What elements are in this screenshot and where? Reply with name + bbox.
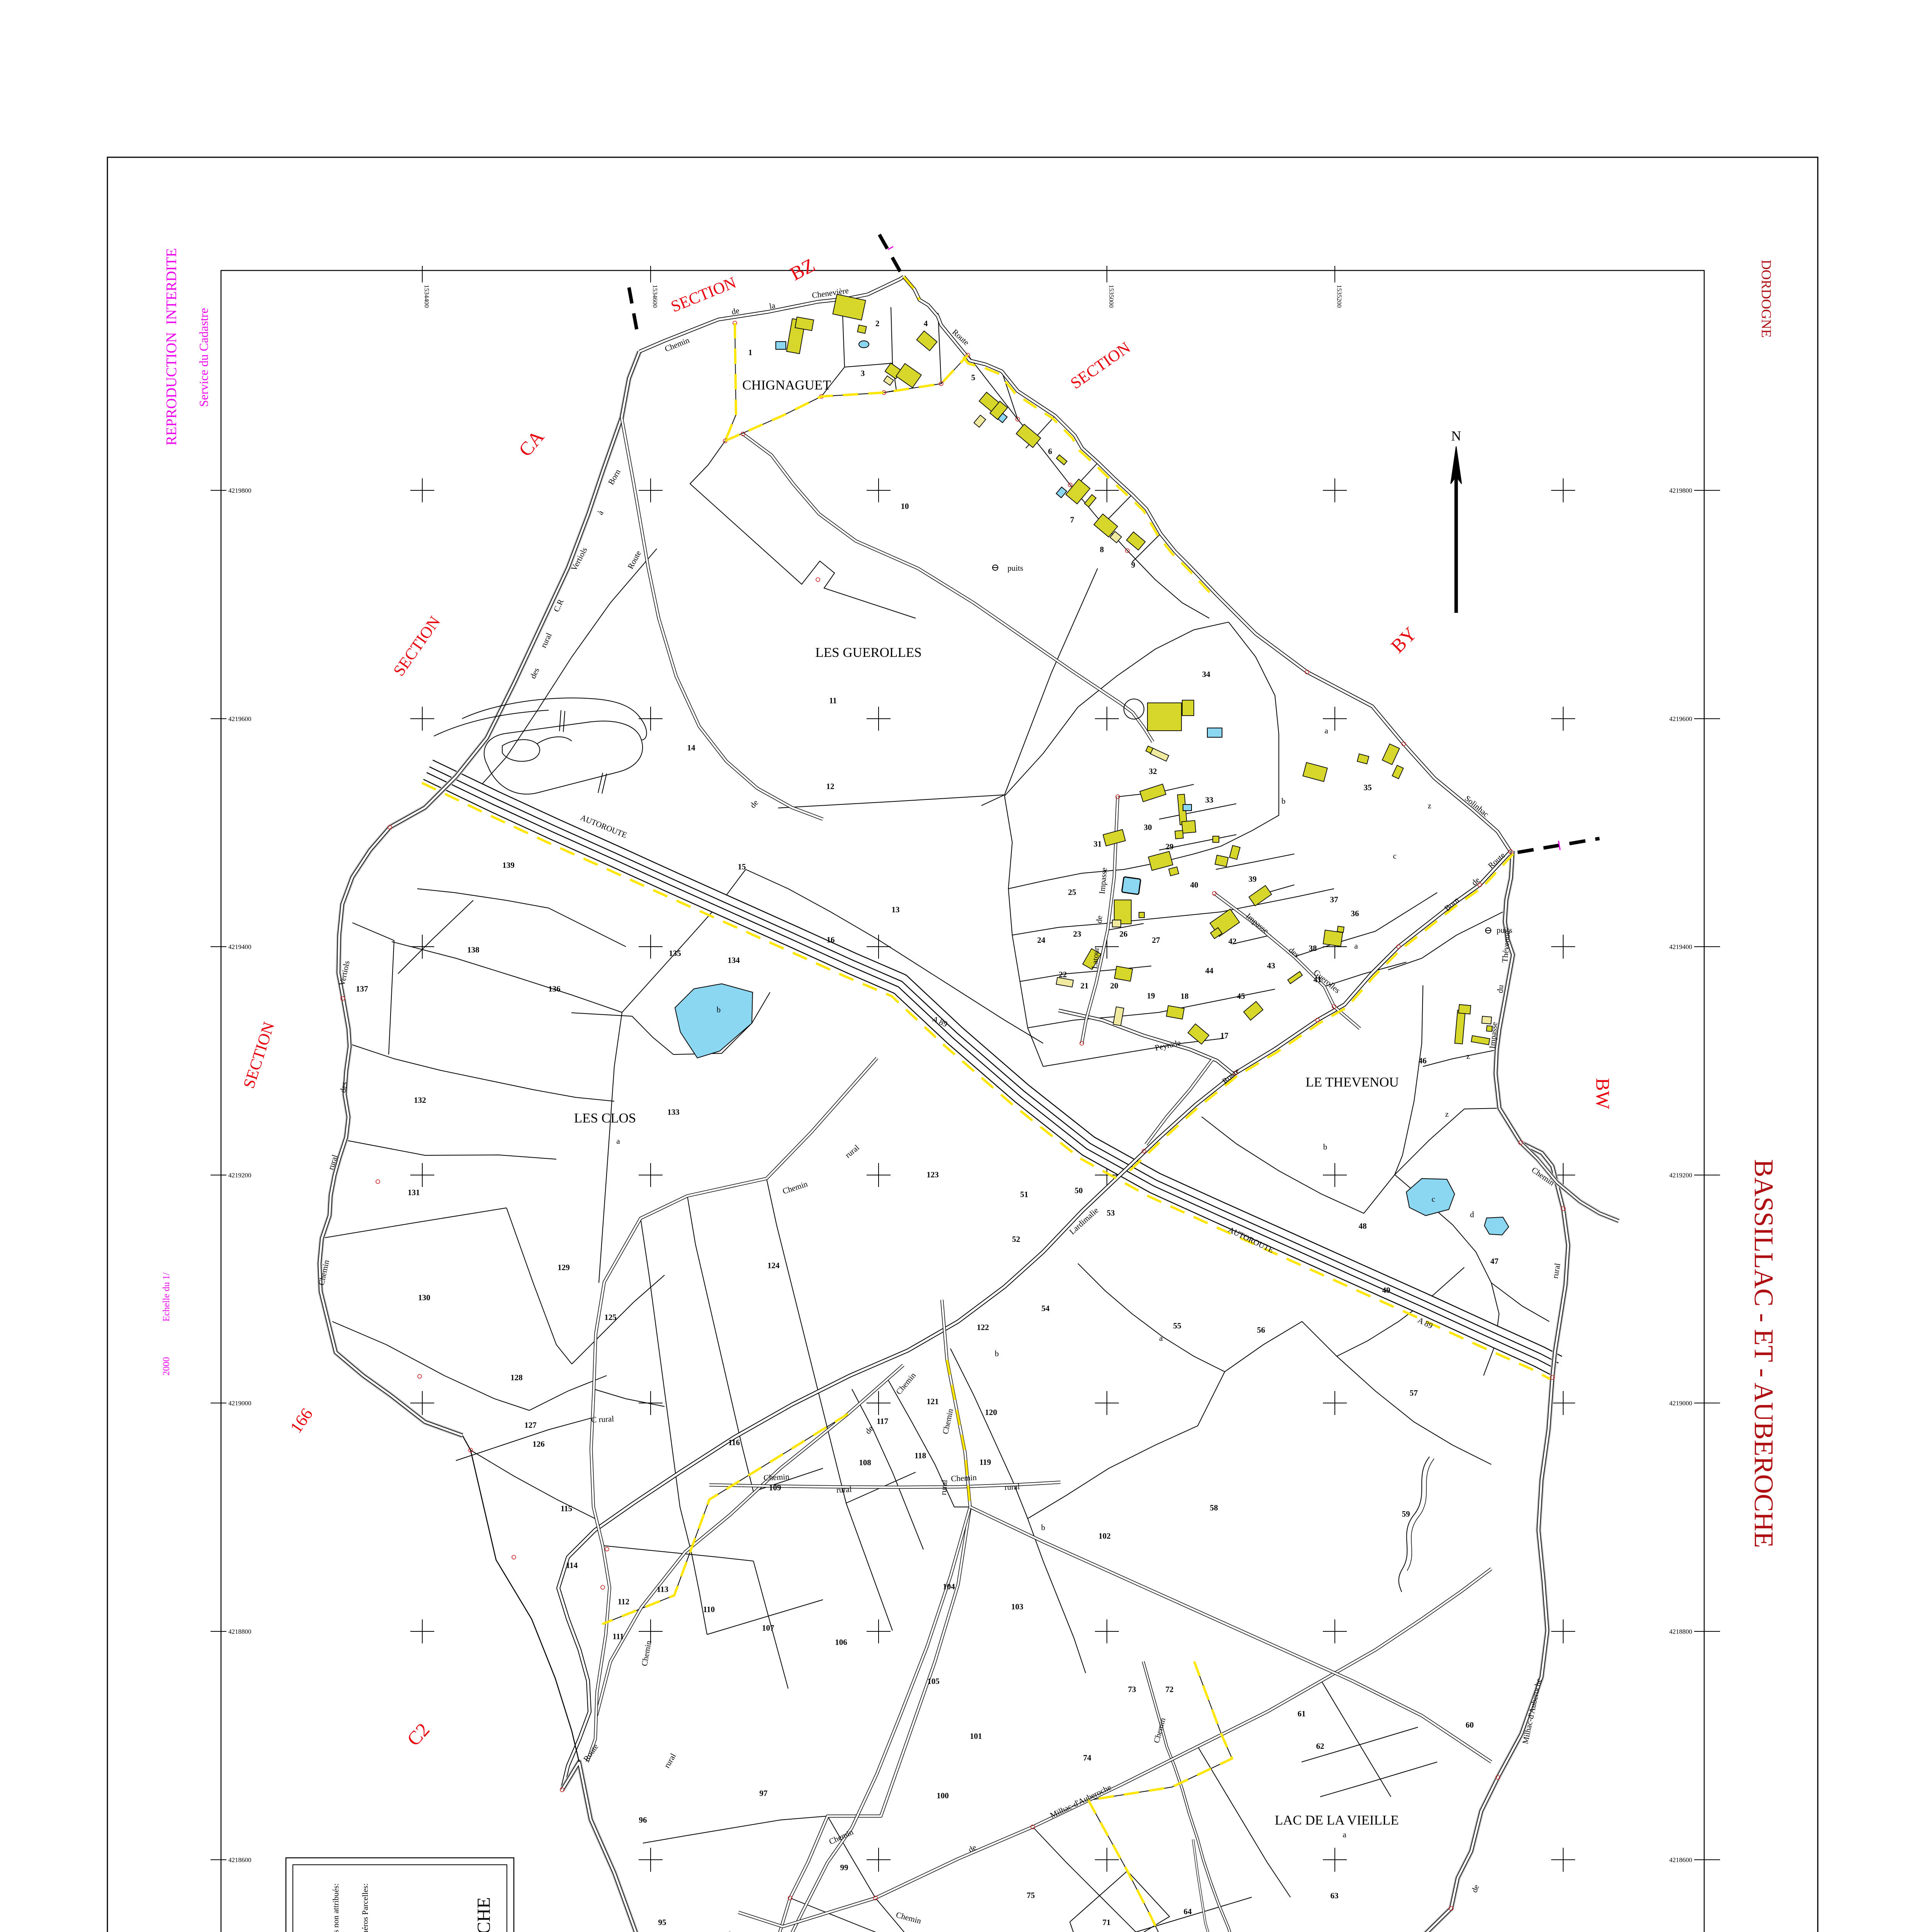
- svg-text:107: 107: [762, 1623, 774, 1633]
- svg-text:1535200: 1535200: [1336, 285, 1343, 308]
- svg-text:128: 128: [510, 1373, 523, 1382]
- svg-text:20: 20: [1110, 981, 1118, 990]
- svg-text:4219400: 4219400: [1669, 943, 1693, 951]
- svg-text:COMMUNE DE BASSILLAC-ET AUBERO: COMMUNE DE BASSILLAC-ET AUBEROCHE: [474, 1897, 494, 1932]
- svg-text:97: 97: [760, 1789, 768, 1798]
- svg-text:z: z: [1466, 1051, 1470, 1061]
- svg-text:N: N: [1451, 428, 1461, 444]
- svg-text:27: 27: [1152, 935, 1160, 945]
- svg-text:114: 114: [566, 1561, 578, 1570]
- svg-text:129: 129: [558, 1263, 570, 1272]
- svg-text:24: 24: [1037, 935, 1046, 945]
- svg-text:4218800: 4218800: [228, 1628, 252, 1635]
- svg-text:63: 63: [1331, 1891, 1339, 1900]
- svg-text:25: 25: [1068, 888, 1076, 897]
- svg-text:100: 100: [937, 1791, 949, 1800]
- svg-text:133: 133: [667, 1107, 680, 1117]
- svg-text:4219800: 4219800: [228, 487, 252, 494]
- svg-text:104: 104: [943, 1582, 955, 1591]
- svg-text:15: 15: [738, 862, 746, 871]
- svg-text:115: 115: [561, 1504, 572, 1513]
- svg-text:rural: rural: [1004, 1482, 1020, 1492]
- svg-text:34: 34: [1202, 670, 1211, 679]
- svg-text:135: 135: [669, 949, 681, 958]
- svg-text:121: 121: [926, 1397, 939, 1406]
- svg-text:9: 9: [1131, 560, 1135, 570]
- svg-text:4218600: 4218600: [1669, 1856, 1693, 1864]
- svg-text:2000: 2000: [161, 1357, 172, 1376]
- svg-text:42: 42: [1229, 937, 1237, 946]
- svg-text:4219600: 4219600: [228, 715, 252, 723]
- svg-text:4219800: 4219800: [1669, 487, 1693, 494]
- svg-text:6: 6: [1048, 447, 1052, 456]
- svg-text:C rural: C rural: [591, 1414, 614, 1424]
- svg-text:LE THEVENOU: LE THEVENOU: [1305, 1075, 1399, 1090]
- svg-text:108: 108: [859, 1458, 871, 1467]
- svg-text:z: z: [1445, 1109, 1448, 1119]
- svg-text:127: 127: [524, 1420, 537, 1430]
- svg-text:118: 118: [914, 1451, 926, 1460]
- svg-text:102: 102: [1098, 1531, 1111, 1541]
- svg-text:1535000: 1535000: [1108, 285, 1115, 308]
- svg-text:50: 50: [1075, 1186, 1083, 1195]
- svg-text:55: 55: [1173, 1321, 1181, 1330]
- svg-text:132: 132: [414, 1095, 426, 1105]
- svg-text:46: 46: [1419, 1056, 1427, 1065]
- svg-text:62: 62: [1316, 1742, 1324, 1751]
- svg-text:DORDOGNE: DORDOGNE: [1759, 260, 1774, 338]
- svg-text:74: 74: [1083, 1753, 1092, 1762]
- svg-text:Numéros Parcelles:: Numéros Parcelles:: [360, 1883, 370, 1932]
- svg-text:57: 57: [1410, 1388, 1418, 1398]
- svg-text:117: 117: [877, 1417, 888, 1426]
- svg-text:51: 51: [1020, 1190, 1028, 1199]
- svg-text:138: 138: [467, 945, 479, 954]
- svg-text:112: 112: [618, 1597, 629, 1606]
- svg-text:a: a: [1343, 1830, 1346, 1839]
- svg-text:4: 4: [924, 319, 928, 328]
- svg-text:71: 71: [1103, 1918, 1111, 1927]
- svg-text:103: 103: [1011, 1602, 1023, 1611]
- svg-text:29: 29: [1166, 842, 1174, 851]
- svg-text:52: 52: [1012, 1235, 1020, 1244]
- svg-text:123: 123: [926, 1170, 939, 1179]
- svg-text:17: 17: [1220, 1031, 1229, 1040]
- svg-text:Numéros non attribués:: Numéros non attribués:: [331, 1883, 340, 1932]
- svg-text:43: 43: [1267, 961, 1275, 970]
- svg-text:10: 10: [901, 502, 909, 511]
- svg-text:126: 126: [532, 1439, 545, 1449]
- svg-text:37: 37: [1330, 895, 1338, 904]
- svg-text:106: 106: [835, 1638, 847, 1647]
- svg-text:b: b: [1323, 1142, 1327, 1151]
- svg-text:116: 116: [728, 1438, 740, 1447]
- svg-text:4219200: 4219200: [1669, 1172, 1693, 1179]
- svg-text:Chemin: Chemin: [951, 1473, 977, 1483]
- svg-text:47: 47: [1491, 1257, 1499, 1266]
- svg-text:21: 21: [1081, 981, 1089, 990]
- svg-text:8: 8: [1100, 545, 1104, 554]
- svg-text:LES GUEROLLES: LES GUEROLLES: [815, 645, 921, 660]
- svg-text:1534400: 1534400: [423, 285, 430, 308]
- svg-text:33: 33: [1205, 795, 1214, 804]
- svg-text:a: a: [1324, 726, 1328, 735]
- svg-text:1: 1: [748, 348, 753, 357]
- svg-text:d: d: [1470, 1210, 1474, 1219]
- svg-text:120: 120: [985, 1408, 997, 1417]
- svg-text:134: 134: [727, 956, 740, 965]
- svg-text:Chemin: Chemin: [763, 1472, 790, 1482]
- svg-text:139: 139: [502, 861, 515, 870]
- svg-text:3: 3: [861, 369, 865, 378]
- svg-text:16: 16: [827, 935, 835, 944]
- svg-text:136: 136: [548, 984, 561, 993]
- svg-text:7: 7: [1070, 515, 1074, 524]
- svg-text:b: b: [995, 1349, 999, 1358]
- svg-text:c: c: [1431, 1194, 1435, 1204]
- svg-text:73: 73: [1128, 1685, 1136, 1694]
- svg-text:BW: BW: [1592, 1078, 1614, 1109]
- svg-text:36: 36: [1351, 909, 1359, 918]
- svg-text:rural: rural: [938, 1479, 949, 1495]
- svg-text:11: 11: [829, 696, 837, 705]
- svg-text:BASSILLAC - ET - AUBEROCHE: BASSILLAC - ET - AUBEROCHE: [1749, 1159, 1778, 1548]
- svg-text:a: a: [1159, 1333, 1163, 1343]
- svg-text:45: 45: [1237, 992, 1245, 1001]
- svg-text:a: a: [616, 1136, 620, 1146]
- svg-text:2: 2: [875, 319, 880, 328]
- svg-text:75: 75: [1027, 1891, 1035, 1900]
- svg-text:22: 22: [1059, 970, 1067, 979]
- svg-text:4219400: 4219400: [228, 943, 252, 951]
- svg-text:137: 137: [356, 984, 368, 993]
- svg-text:39: 39: [1249, 874, 1257, 884]
- svg-text:60: 60: [1466, 1720, 1474, 1730]
- svg-text:14: 14: [687, 743, 696, 752]
- svg-text:4218600: 4218600: [228, 1856, 252, 1864]
- svg-text:130: 130: [418, 1293, 430, 1302]
- svg-text:32: 32: [1149, 767, 1157, 776]
- svg-text:72: 72: [1166, 1685, 1174, 1694]
- svg-text:111: 111: [612, 1632, 624, 1641]
- svg-text:110: 110: [703, 1605, 715, 1614]
- svg-text:c: c: [1393, 851, 1396, 861]
- svg-text:4219000: 4219000: [1669, 1400, 1693, 1407]
- svg-text:99: 99: [840, 1863, 848, 1872]
- svg-text:4218800: 4218800: [1669, 1628, 1693, 1635]
- svg-text:95: 95: [658, 1918, 666, 1927]
- svg-text:49: 49: [1382, 1286, 1390, 1295]
- svg-text:CHIGNAGUET: CHIGNAGUET: [742, 378, 831, 393]
- svg-text:64: 64: [1184, 1907, 1192, 1916]
- svg-text:31: 31: [1094, 839, 1102, 849]
- svg-text:REPRODUCTION INTERDITE: REPRODUCTION INTERDITE: [163, 248, 180, 446]
- svg-text:13: 13: [892, 905, 900, 914]
- svg-text:Service du Cadastre: Service du Cadastre: [197, 308, 211, 407]
- svg-text:5: 5: [971, 373, 976, 382]
- svg-text:LES CLOS: LES CLOS: [574, 1111, 636, 1126]
- svg-text:44: 44: [1205, 966, 1214, 975]
- svg-text:Latour: Latour: [1090, 947, 1101, 969]
- svg-text:19: 19: [1147, 991, 1155, 1000]
- svg-text:4219200: 4219200: [228, 1172, 252, 1179]
- svg-text:des: des: [338, 1081, 349, 1094]
- svg-text:61: 61: [1298, 1709, 1306, 1718]
- svg-text:30: 30: [1144, 823, 1152, 832]
- svg-text:LAC DE LA VIEILLE: LAC DE LA VIEILLE: [1275, 1813, 1399, 1828]
- svg-text:z: z: [1428, 801, 1431, 810]
- svg-text:122: 122: [977, 1323, 989, 1332]
- svg-text:4219000: 4219000: [228, 1400, 252, 1407]
- svg-text:a: a: [1354, 941, 1358, 951]
- svg-text:109: 109: [769, 1483, 781, 1492]
- svg-text:58: 58: [1210, 1503, 1218, 1512]
- svg-text:b: b: [717, 1005, 721, 1014]
- svg-text:119: 119: [979, 1458, 991, 1467]
- svg-text:48: 48: [1359, 1221, 1367, 1231]
- svg-text:puits: puits: [1497, 925, 1513, 935]
- svg-text:113: 113: [657, 1585, 668, 1594]
- svg-text:23: 23: [1073, 929, 1081, 939]
- svg-text:35: 35: [1364, 783, 1372, 792]
- svg-text:de: de: [1094, 915, 1104, 923]
- svg-text:96: 96: [639, 1815, 647, 1825]
- svg-text:12: 12: [826, 782, 835, 791]
- svg-text:53: 53: [1107, 1208, 1115, 1218]
- svg-text:4219600: 4219600: [1669, 715, 1693, 723]
- svg-text:125: 125: [604, 1313, 617, 1322]
- svg-text:rural: rural: [836, 1485, 852, 1495]
- svg-text:26: 26: [1120, 929, 1128, 939]
- svg-text:56: 56: [1257, 1325, 1265, 1335]
- svg-text:Echelle du 1/: Echelle du 1/: [161, 1272, 172, 1321]
- svg-text:1534600: 1534600: [651, 285, 659, 308]
- svg-text:131: 131: [408, 1188, 420, 1197]
- svg-text:b: b: [1041, 1523, 1045, 1532]
- svg-text:54: 54: [1042, 1304, 1050, 1313]
- svg-text:38: 38: [1309, 944, 1317, 953]
- svg-text:59: 59: [1402, 1509, 1410, 1519]
- svg-text:40: 40: [1190, 880, 1198, 889]
- svg-text:101: 101: [970, 1731, 982, 1741]
- svg-text:105: 105: [927, 1677, 940, 1686]
- svg-text:puits: puits: [1008, 563, 1023, 573]
- svg-text:du: du: [1495, 984, 1505, 993]
- svg-text:18: 18: [1181, 992, 1189, 1001]
- svg-text:b: b: [1282, 796, 1286, 806]
- svg-text:124: 124: [767, 1261, 780, 1270]
